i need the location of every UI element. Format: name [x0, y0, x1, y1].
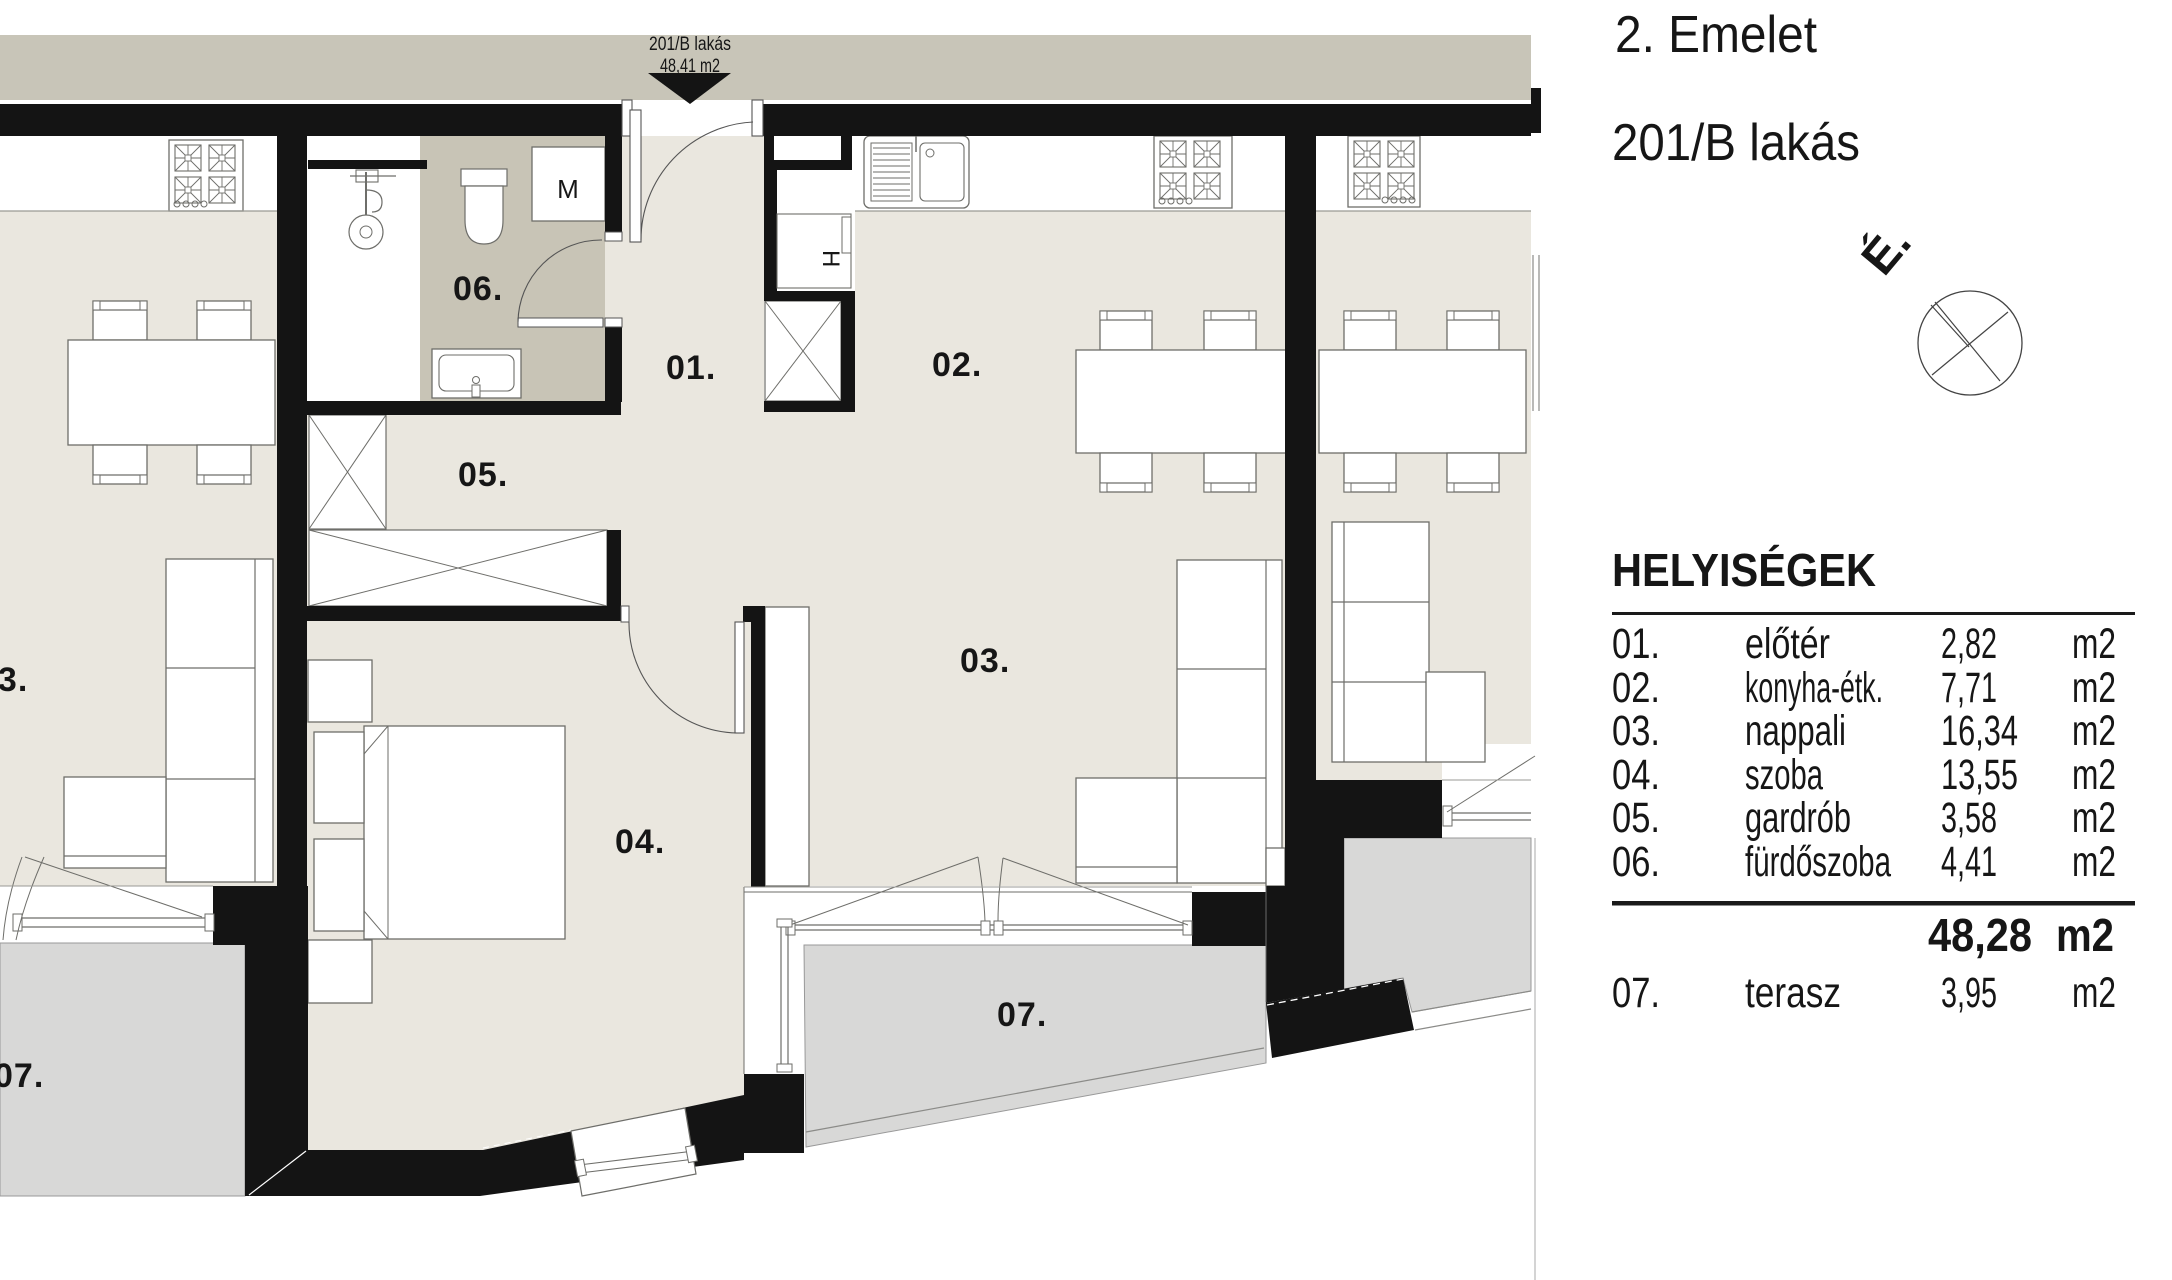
svg-text:2,82: 2,82: [1941, 620, 1997, 668]
svg-text:48,28: 48,28: [1928, 909, 2032, 961]
svg-text:m2: m2: [2072, 664, 2116, 712]
svg-text:m2: m2: [2056, 909, 2114, 961]
svg-text:m2: m2: [2072, 707, 2116, 755]
svg-text:szoba: szoba: [1745, 751, 1823, 799]
svg-text:201/B lakás: 201/B lakás: [649, 34, 731, 55]
svg-text:06.: 06.: [453, 270, 503, 308]
svg-text:03.: 03.: [0, 661, 28, 699]
svg-text:3,58: 3,58: [1941, 794, 1997, 842]
svg-text:3,95: 3,95: [1941, 969, 1997, 1017]
svg-text:201/B lakás: 201/B lakás: [1612, 114, 1860, 172]
svg-text:06.: 06.: [1612, 838, 1660, 886]
svg-text:13,55: 13,55: [1941, 751, 2018, 799]
svg-text:HELYISÉGEK: HELYISÉGEK: [1612, 544, 1876, 596]
svg-text:16,34: 16,34: [1941, 707, 2018, 755]
svg-text:gardrób: gardrób: [1745, 794, 1851, 842]
svg-text:04.: 04.: [1612, 751, 1660, 799]
svg-text:01.: 01.: [1612, 620, 1660, 668]
svg-text:fürdőszoba: fürdőszoba: [1745, 838, 1891, 886]
svg-text:04.: 04.: [615, 823, 665, 861]
svg-text:előtér: előtér: [1745, 620, 1830, 668]
svg-text:03.: 03.: [1612, 707, 1660, 755]
svg-text:03.: 03.: [960, 642, 1010, 680]
svg-text:H: H: [817, 250, 844, 267]
svg-text:02.: 02.: [1612, 664, 1660, 712]
svg-text:2. Emelet: 2. Emelet: [1615, 6, 1818, 64]
svg-text:m2: m2: [2072, 751, 2116, 799]
svg-text:m2: m2: [2072, 620, 2116, 668]
svg-text:01.: 01.: [666, 349, 716, 387]
svg-text:m2: m2: [2072, 969, 2116, 1017]
svg-text:05.: 05.: [458, 456, 508, 494]
svg-text:m2: m2: [2072, 838, 2116, 886]
svg-text:07.: 07.: [0, 1057, 44, 1095]
svg-text:m2: m2: [2072, 794, 2116, 842]
svg-text:07.: 07.: [1612, 969, 1660, 1017]
svg-text:05.: 05.: [1612, 794, 1660, 842]
svg-text:02.: 02.: [932, 346, 982, 384]
svg-text:nappali: nappali: [1745, 707, 1846, 755]
svg-text:terasz: terasz: [1745, 969, 1841, 1017]
svg-text:7,71: 7,71: [1941, 664, 1997, 712]
svg-text:07.: 07.: [997, 996, 1047, 1034]
svg-text:M: M: [557, 174, 579, 204]
svg-text:4,41: 4,41: [1941, 838, 1997, 886]
svg-text:konyha-étk.: konyha-étk.: [1745, 664, 1883, 712]
